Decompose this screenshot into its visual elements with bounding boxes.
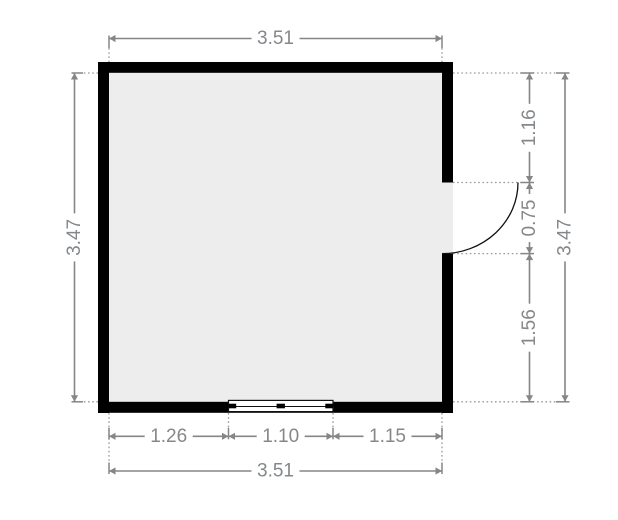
svg-text:1.26: 1.26 [150,426,187,447]
svg-text:1.16: 1.16 [519,109,540,146]
svg-text:1.15: 1.15 [369,426,406,447]
svg-text:1.56: 1.56 [519,309,540,346]
svg-text:3.51: 3.51 [257,461,294,482]
svg-text:0.75: 0.75 [519,200,540,237]
svg-text:3.51: 3.51 [257,28,294,49]
svg-text:3.47: 3.47 [555,219,576,256]
svg-text:1.10: 1.10 [262,426,299,447]
svg-text:3.47: 3.47 [64,219,85,256]
